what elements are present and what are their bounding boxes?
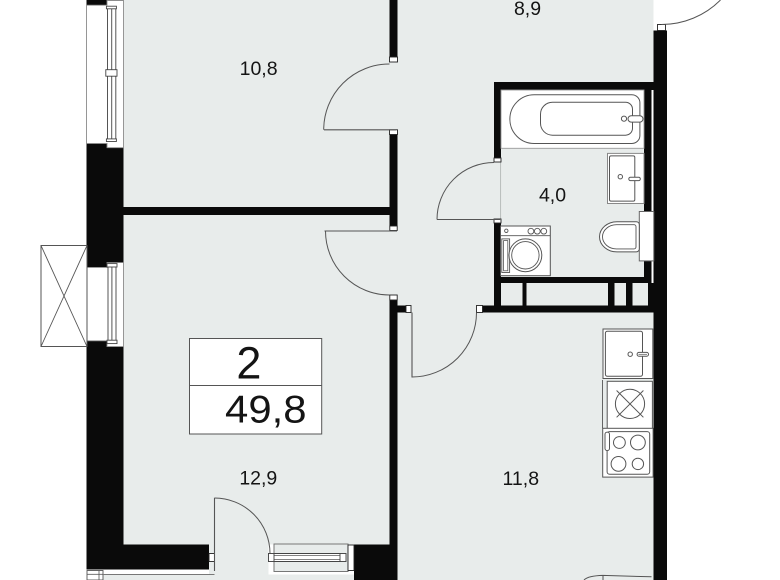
svg-text:2: 2 <box>236 338 261 389</box>
svg-text:4,0: 4,0 <box>539 185 566 207</box>
svg-text:49,8: 49,8 <box>225 389 307 432</box>
svg-text:11,8: 11,8 <box>503 468 540 490</box>
svg-text:10,8: 10,8 <box>240 58 278 80</box>
svg-text:12,9: 12,9 <box>239 468 277 490</box>
svg-text:8,9: 8,9 <box>514 0 541 20</box>
